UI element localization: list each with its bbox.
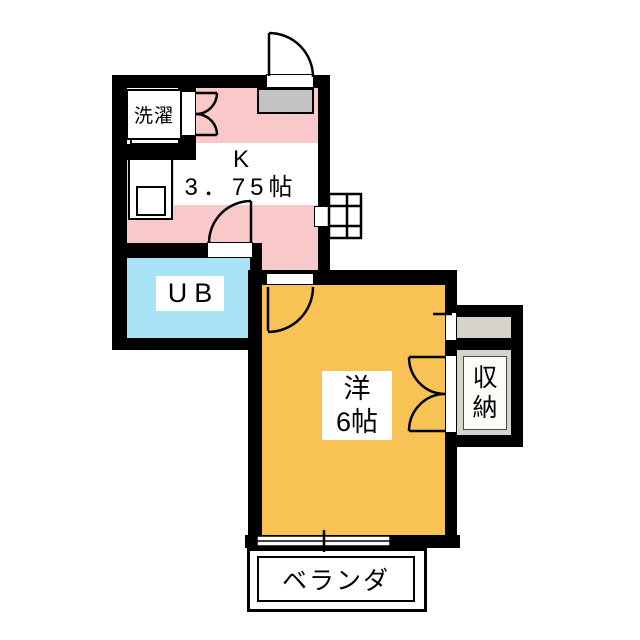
entrance-door-opening [266,74,314,88]
western-room-label-line2: 6帖 [336,406,378,438]
wall-unitbath-bottom [112,338,262,350]
entrance-shoe-cabinet [257,88,314,114]
western-room-label-box: 洋 6帖 [322,371,392,440]
kitchen-window-grid [329,194,361,238]
wall-kitchen-right [318,75,330,285]
kitchen-sink [136,186,166,216]
laundry-label: 洗濯 [134,101,174,128]
washer-box: 洗濯 [126,89,182,140]
storage-upper-shelf [457,316,512,339]
kitchen-window-opening [314,206,330,227]
veranda-label-box: ベランダ [257,556,415,602]
corridor-fill [262,243,318,273]
wall-outer-left [112,75,127,350]
wall-western-room-left [248,270,262,548]
veranda-label: ベランダ [282,561,390,597]
western-room-door-opening [266,273,314,285]
kitchen-label-line2: 3．75帖 [184,174,297,202]
entrance-door-swing-arc [269,33,313,77]
kitchen-label: K 3．75帖 [176,144,306,204]
storage-label-char1: 収 [472,363,497,393]
unitbath-door-opening [207,242,253,258]
storage-label-box: 収 納 [463,356,507,430]
kitchen-label-line1: K [233,146,249,174]
floor-plan-canvas: 洗濯 K 3．75帖 UB 洋 6帖 収 納 ベランダ [0,0,640,640]
closet-door-opening [445,355,457,433]
western-room-label-line1: 洋 [344,373,371,405]
unit-bath-label: UB [161,278,220,309]
wall-western-room-bottom [245,535,460,548]
upper-shelf-opening [445,312,457,341]
unit-bath-label-box: UB [156,276,224,311]
wall-storage-middle [457,338,512,350]
storage-label-char2: 納 [472,393,497,423]
wall-storage-right [511,305,523,447]
